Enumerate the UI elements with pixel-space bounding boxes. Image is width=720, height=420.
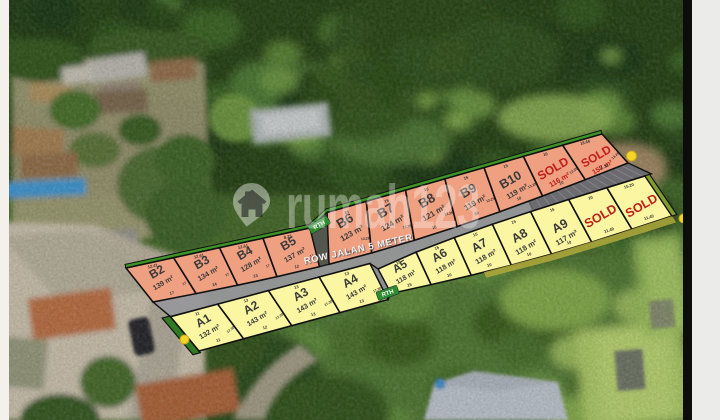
svg-text:rumah123: rumah123 <box>286 173 480 242</box>
